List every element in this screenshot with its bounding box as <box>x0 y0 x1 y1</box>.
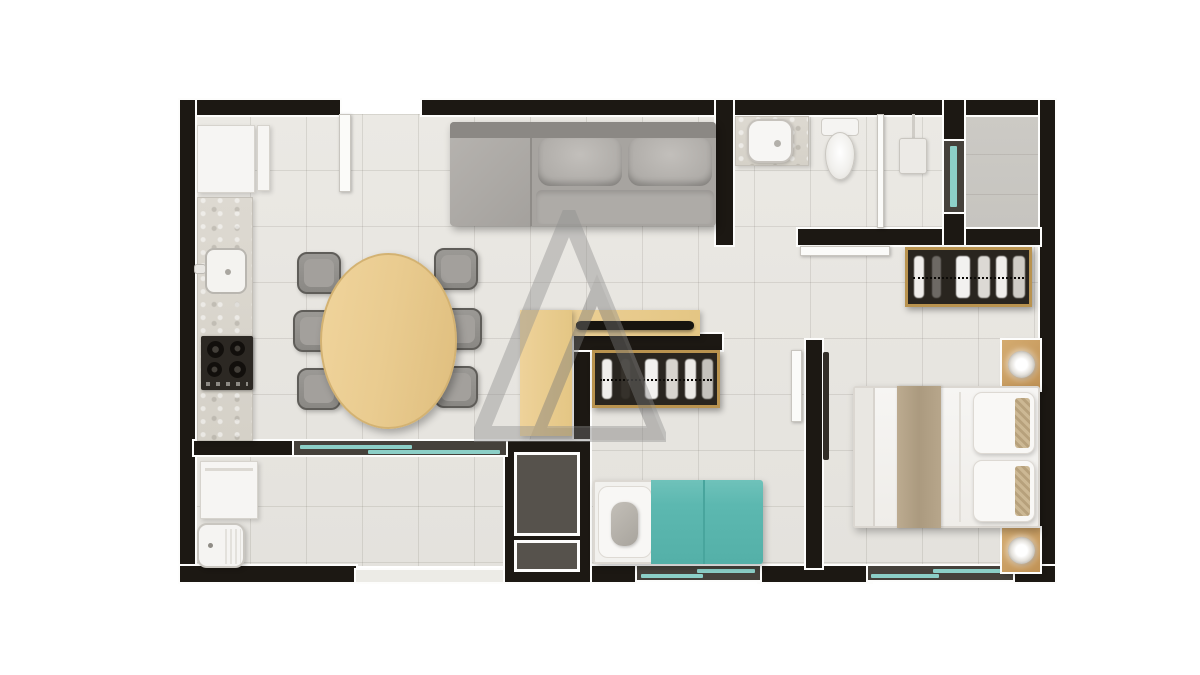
tank-drain <box>208 543 213 548</box>
sofa-back <box>450 122 716 138</box>
technical-shaft <box>505 441 590 582</box>
sofa-cushion <box>538 138 622 186</box>
window-pane <box>697 569 755 573</box>
window-pane <box>933 569 1009 573</box>
washing-machine <box>200 461 258 519</box>
shower <box>899 138 927 174</box>
cooktop-knobs <box>206 382 248 386</box>
pillow <box>973 460 1035 522</box>
burner <box>230 341 245 356</box>
dining-table <box>320 253 457 429</box>
shower-partition <box>877 114 884 228</box>
window-master-bedroom <box>868 566 1013 580</box>
refrigerator <box>197 125 255 193</box>
pillow-pattern <box>1015 466 1030 516</box>
window-second-bedroom <box>637 566 760 580</box>
burner <box>229 361 246 378</box>
wall-right <box>1040 100 1055 582</box>
utility-room-floor <box>964 114 1040 229</box>
sink-drain <box>774 140 781 147</box>
burner <box>207 362 222 377</box>
nightstand <box>1002 528 1040 572</box>
wall-bottom-service <box>180 566 356 582</box>
toilet-bowl <box>825 132 855 180</box>
kitchen-faucet <box>194 264 206 274</box>
laundry-tank <box>197 523 245 568</box>
wall-service-divider <box>194 441 296 455</box>
nightstand-lamp <box>1008 537 1035 564</box>
window-pane <box>641 574 703 578</box>
second-bedroom-door <box>791 350 802 422</box>
window-dining-service <box>294 441 506 455</box>
teal-blanket <box>651 480 763 564</box>
bed-sheet-seam <box>959 392 961 522</box>
burner <box>207 341 224 358</box>
wall-bathroom-left <box>716 100 733 245</box>
wall-top-left <box>180 100 340 115</box>
double-bed <box>853 386 1040 528</box>
kitchen-cabinet <box>257 125 270 191</box>
nightstand-lamp <box>1008 351 1035 378</box>
shaft-hatch-upper <box>517 455 577 533</box>
single-bed <box>593 480 763 564</box>
wall-utility-pier-top <box>944 100 964 142</box>
wall-bathroom-bottom <box>798 229 1040 245</box>
cooktop <box>201 336 253 390</box>
window-utility <box>944 141 964 212</box>
sink-drain <box>225 269 231 275</box>
wall-bottom-between-windows <box>759 566 871 582</box>
master-bedroom-door <box>823 352 829 460</box>
entrance-door <box>339 114 351 192</box>
window-pane <box>871 574 939 578</box>
window-pane <box>950 146 957 207</box>
bathroom-sliding-door <box>800 246 890 256</box>
shower-pipe <box>912 114 915 140</box>
nightstand <box>1002 340 1040 390</box>
service-low-rail <box>356 570 506 582</box>
bathroom-sink <box>747 119 793 163</box>
pillow-pattern <box>1015 398 1030 448</box>
toilet <box>821 118 859 182</box>
pillow <box>973 392 1035 454</box>
wall-left <box>180 100 195 582</box>
kitchen-counter <box>197 197 253 441</box>
washer-panel <box>205 468 253 471</box>
floor-plan-render <box>0 0 1200 675</box>
bolster-pillow <box>611 502 638 546</box>
wall-master-left <box>806 340 822 568</box>
watermark-triangle-logo <box>474 210 666 442</box>
bed-runner <box>897 386 941 528</box>
rack-rail <box>913 277 1024 279</box>
kitchen-sink <box>205 248 247 294</box>
blanket-seam <box>703 480 705 564</box>
tank-ribs <box>225 529 241 564</box>
wall-bottom-shaft-to-window <box>588 566 638 582</box>
window-pane <box>300 445 412 449</box>
wall-utility-pier-bottom <box>944 210 964 245</box>
window-pane <box>368 450 500 454</box>
sofa-cushion <box>628 138 712 186</box>
shaft-hatch-lower <box>517 543 577 569</box>
clothes-rack-master <box>905 247 1032 307</box>
bed-foot-fold <box>855 388 875 526</box>
